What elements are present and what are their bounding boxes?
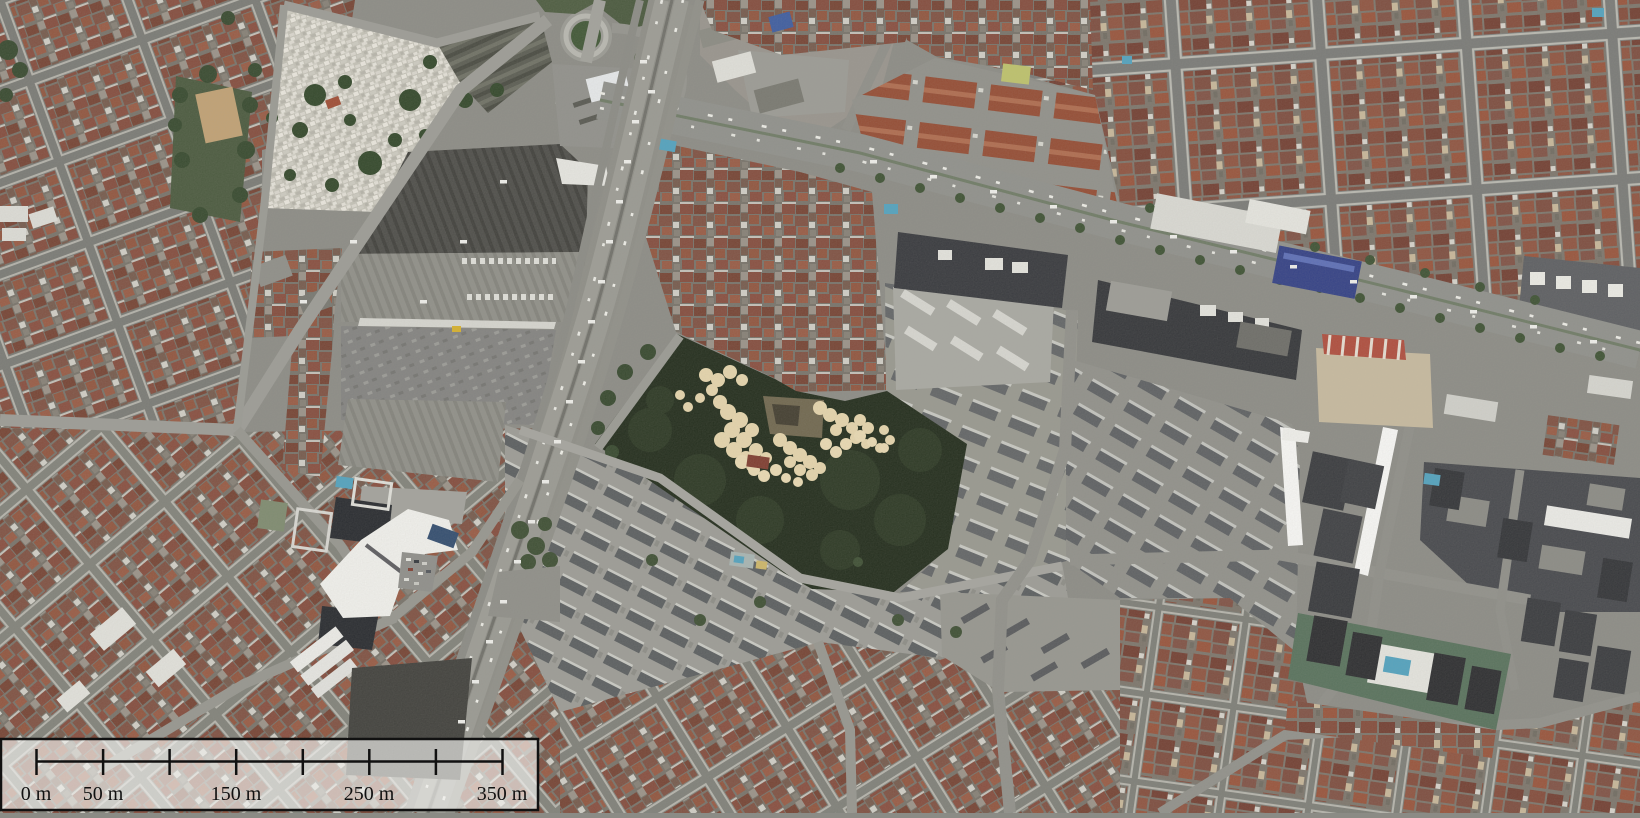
svg-text:150 m: 150 m: [211, 783, 262, 805]
svg-text:50 m: 50 m: [83, 783, 124, 805]
svg-text:250 m: 250 m: [344, 783, 395, 805]
svg-text:0 m: 0 m: [21, 783, 52, 805]
svg-text:350 m: 350 m: [477, 783, 528, 805]
